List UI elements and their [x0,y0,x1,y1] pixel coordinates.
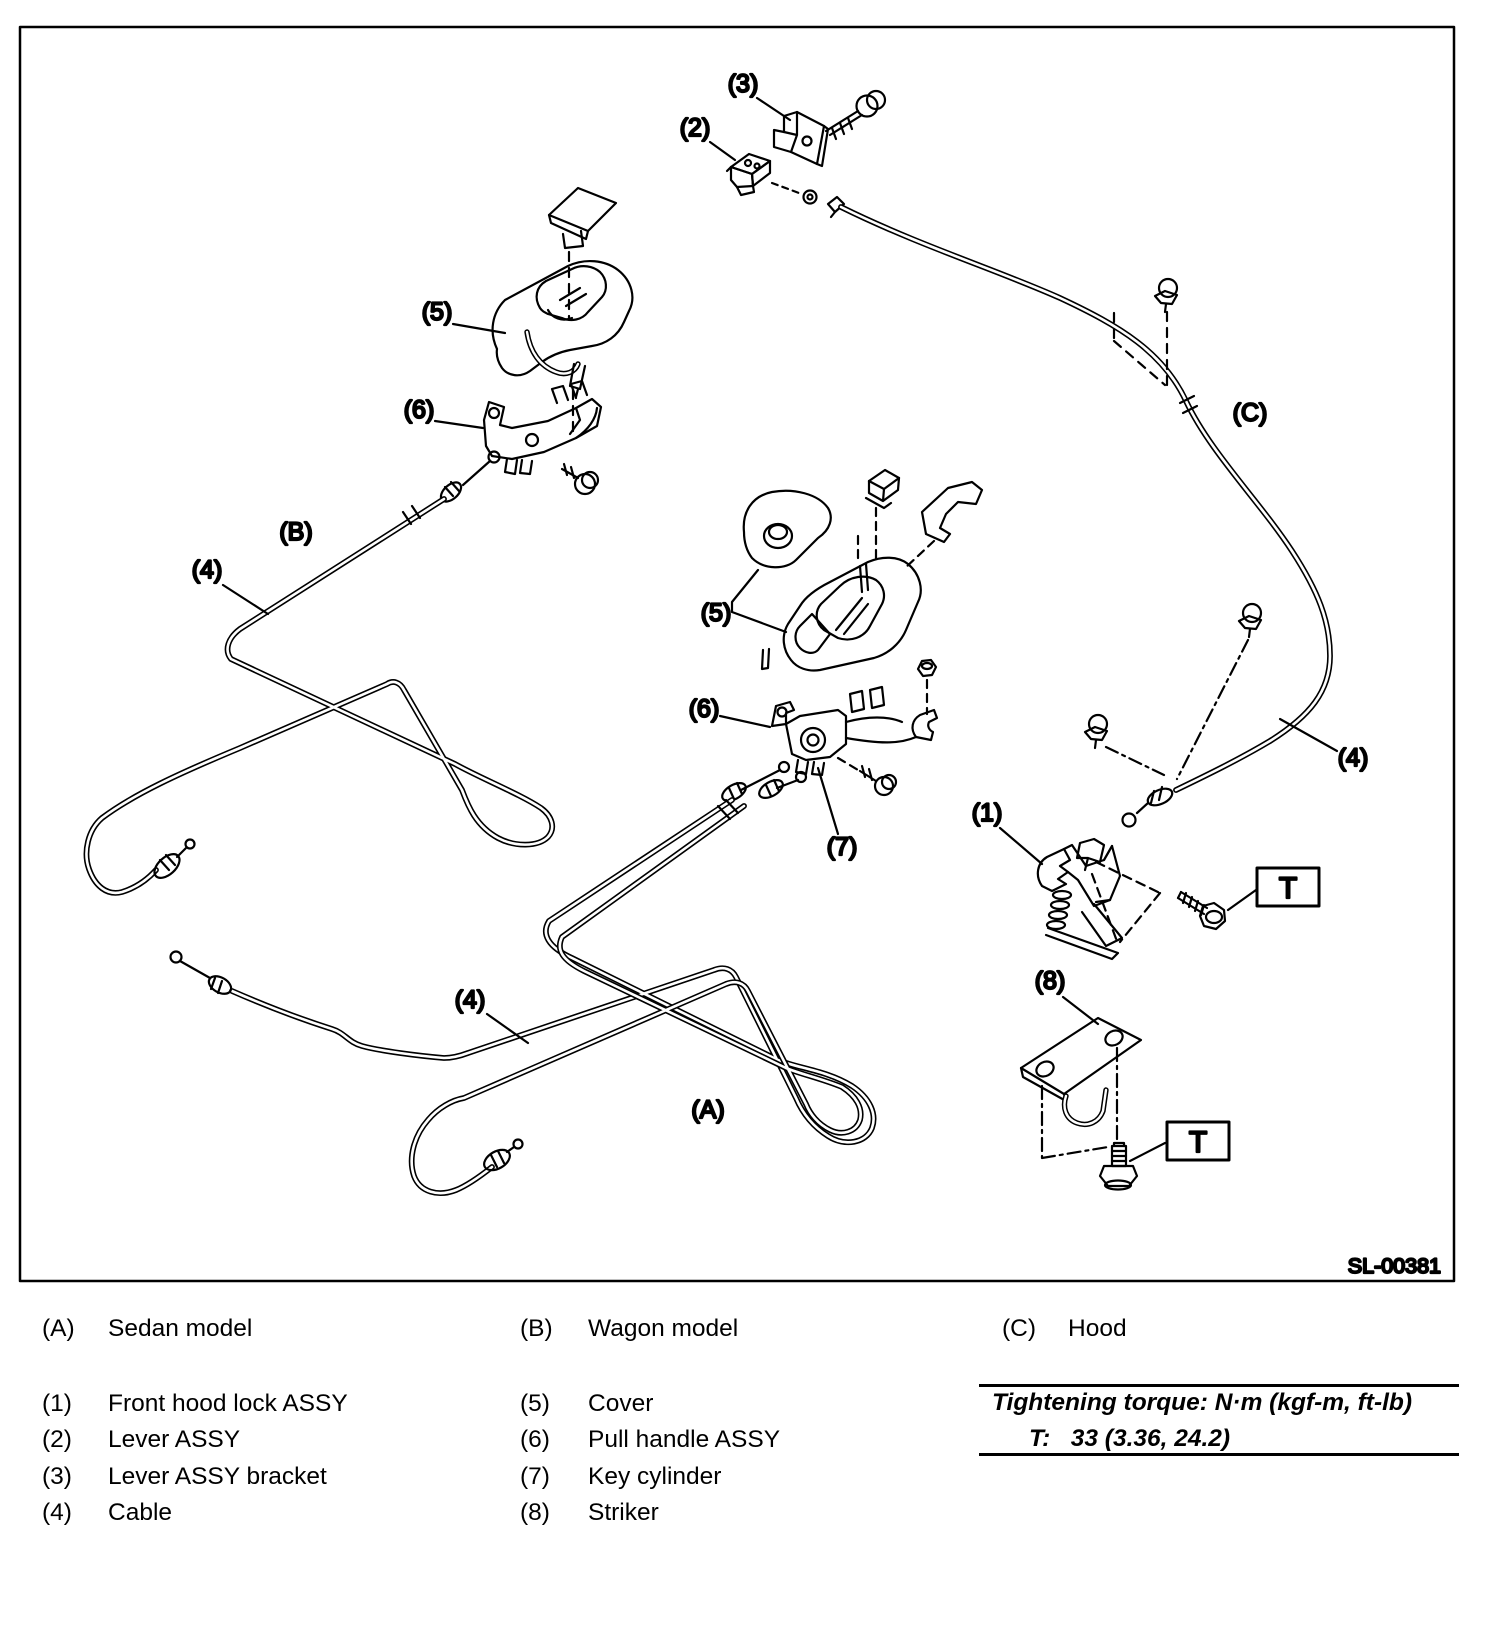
svg-text:(4): (4) [1338,744,1369,772]
svg-text:(4): (4) [455,986,486,1014]
svg-text:(C): (C) [1233,399,1268,427]
svg-text:(8): (8) [1035,967,1066,995]
svg-text:T: T [1279,872,1297,905]
svg-text:(6): (6) [689,695,720,723]
svg-text:(B): (B) [279,518,312,546]
svg-text:(1): (1) [972,799,1003,827]
svg-text:(5): (5) [701,599,732,627]
svg-text:(5): (5) [422,298,453,326]
svg-text:(7): (7) [827,833,858,861]
svg-text:(A): (A) [691,1096,724,1124]
svg-text:(2): (2) [680,114,711,142]
svg-text:(4): (4) [192,556,223,584]
svg-text:SL-00381: SL-00381 [1348,1254,1441,1278]
svg-text:T: T [1189,1126,1207,1159]
svg-text:(6): (6) [404,396,435,424]
svg-text:(3): (3) [728,70,759,98]
